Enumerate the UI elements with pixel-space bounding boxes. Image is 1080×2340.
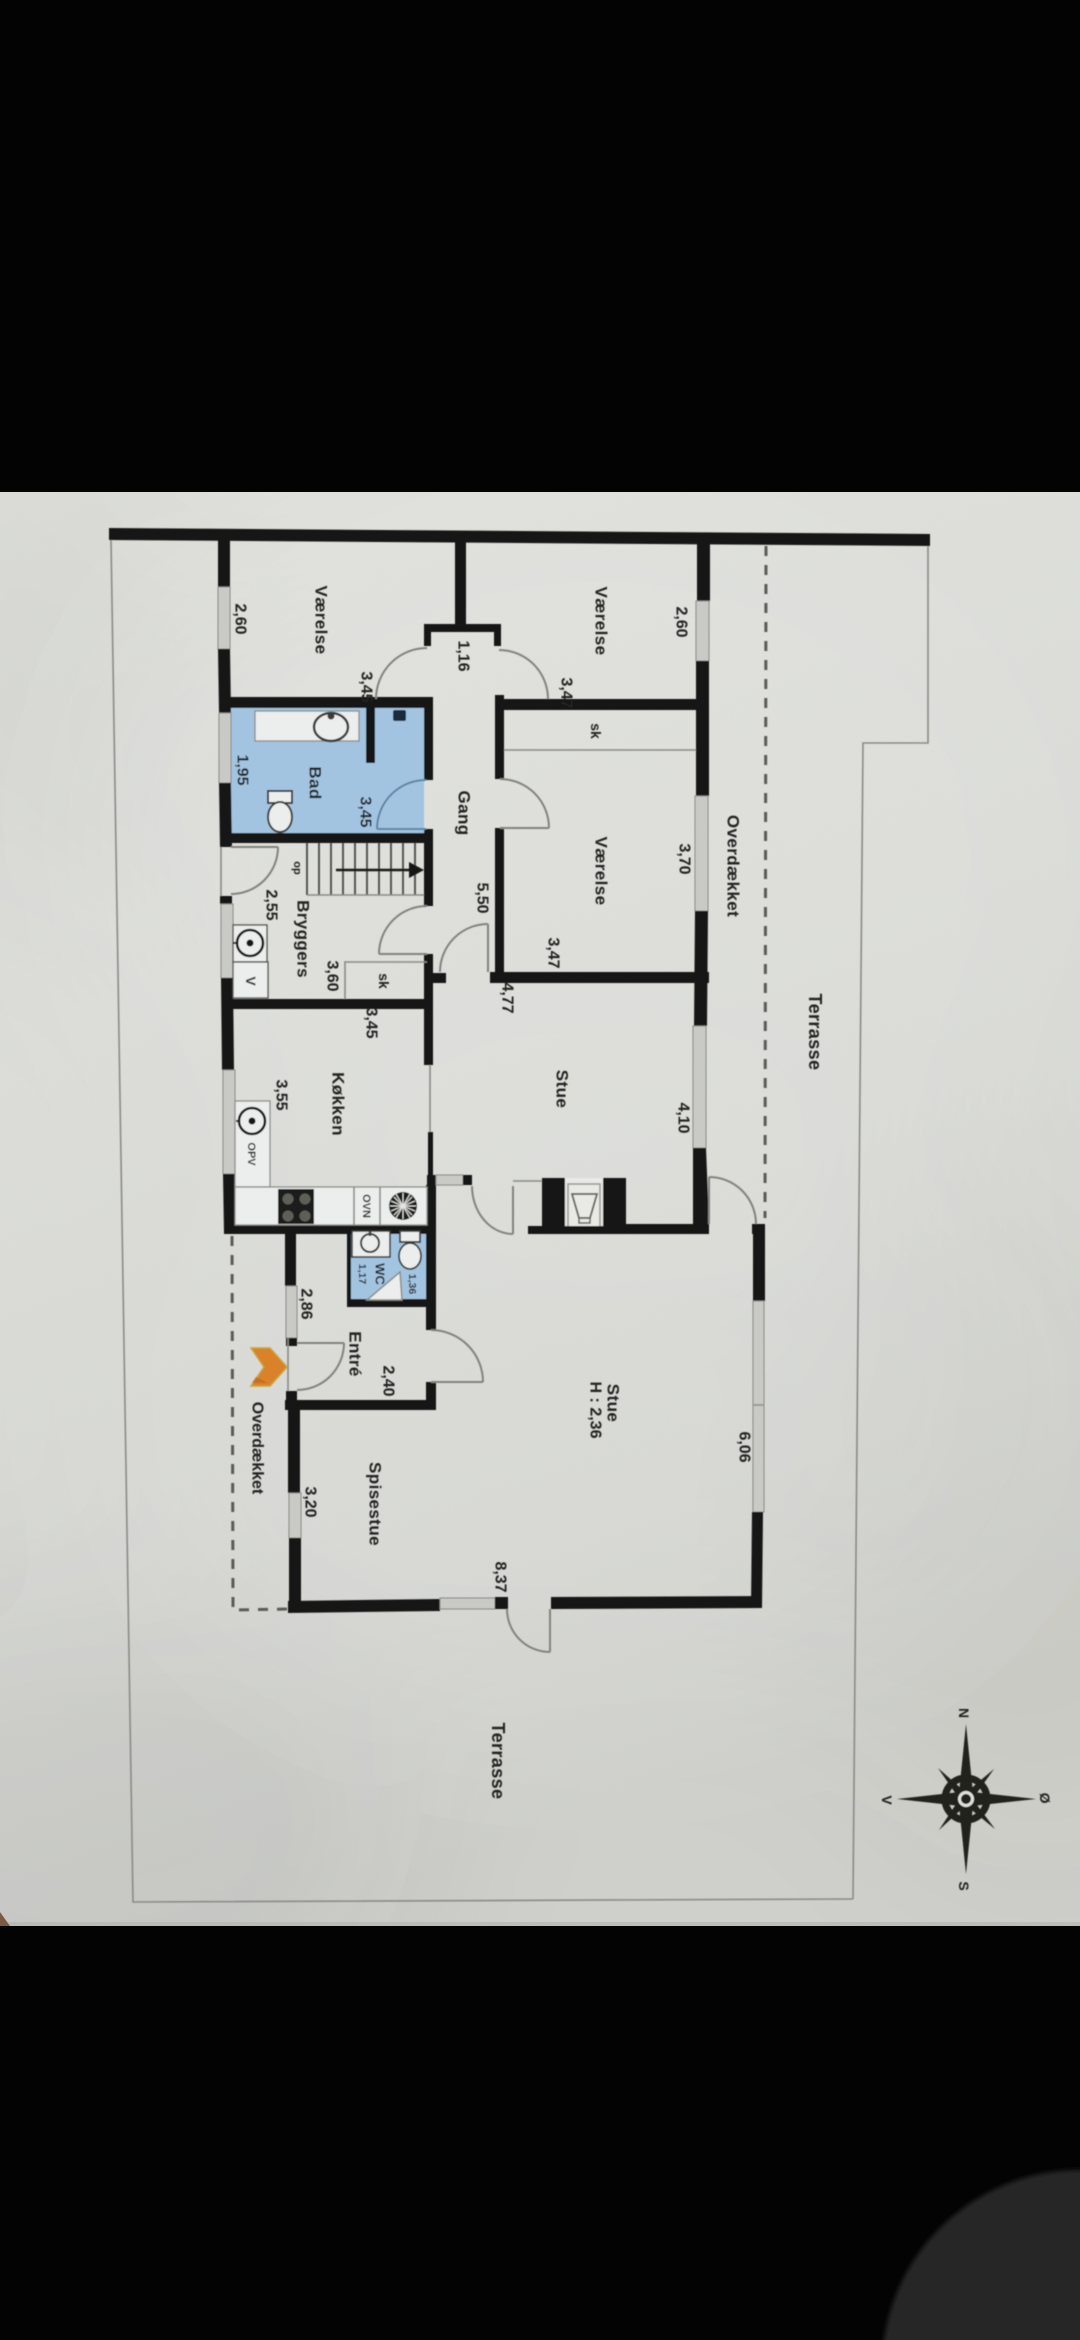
svg-text:3,45: 3,45 xyxy=(357,796,374,827)
svg-text:Køkken: Køkken xyxy=(329,1072,348,1136)
svg-text:1,16: 1,16 xyxy=(455,640,472,671)
svg-text:2,40: 2,40 xyxy=(380,1365,397,1396)
svg-text:3,47: 3,47 xyxy=(558,677,575,708)
svg-text:OVN: OVN xyxy=(360,1194,372,1218)
svg-text:5,50: 5,50 xyxy=(474,882,491,913)
svg-text:3,47: 3,47 xyxy=(545,937,562,968)
svg-text:Ø: Ø xyxy=(1037,1793,1053,1804)
svg-text:Overdækket: Overdækket xyxy=(724,815,743,917)
svg-text:H : 2,36: H : 2,36 xyxy=(587,1382,604,1439)
svg-text:N: N xyxy=(956,1708,972,1718)
svg-text:3,45: 3,45 xyxy=(358,671,375,702)
svg-text:Terrasse: Terrasse xyxy=(488,1723,508,1800)
svg-text:Entré: Entré xyxy=(346,1331,365,1376)
svg-text:Bryggers: Bryggers xyxy=(294,900,313,978)
svg-text:S: S xyxy=(956,1881,972,1890)
svg-text:1,36: 1,36 xyxy=(406,1274,418,1295)
svg-text:3,55: 3,55 xyxy=(273,1079,290,1110)
svg-text:V: V xyxy=(879,1795,895,1805)
svg-text:V: V xyxy=(243,976,259,986)
svg-text:Værelse: Værelse xyxy=(592,837,611,906)
svg-text:op: op xyxy=(291,861,303,875)
svg-text:2,86: 2,86 xyxy=(298,1288,315,1319)
svg-text:6,06: 6,06 xyxy=(736,1431,753,1462)
svg-text:sk: sk xyxy=(376,973,392,989)
svg-text:Overdækket: Overdækket xyxy=(249,1402,266,1495)
svg-text:Værelse: Værelse xyxy=(312,586,331,655)
svg-text:3,60: 3,60 xyxy=(324,960,341,991)
svg-text:4,10: 4,10 xyxy=(675,1102,692,1133)
svg-text:4,77: 4,77 xyxy=(499,982,516,1013)
svg-text:1,95: 1,95 xyxy=(234,754,251,785)
svg-text:2,55: 2,55 xyxy=(263,889,280,920)
svg-text:1,17: 1,17 xyxy=(356,1264,368,1285)
svg-text:3,20: 3,20 xyxy=(302,1486,319,1517)
svg-text:WC: WC xyxy=(373,1263,388,1285)
svg-text:sk: sk xyxy=(588,723,604,739)
svg-text:3,70: 3,70 xyxy=(676,843,693,874)
svg-text:8,37: 8,37 xyxy=(492,1561,509,1592)
svg-text:Værelse: Værelse xyxy=(592,587,611,656)
svg-text:Bad: Bad xyxy=(306,766,325,799)
svg-text:Stue: Stue xyxy=(604,1384,623,1422)
svg-text:Terrasse: Terrasse xyxy=(805,994,825,1071)
svg-text:Gang: Gang xyxy=(455,790,474,835)
svg-text:3,45: 3,45 xyxy=(363,1007,380,1038)
svg-text:Spisestue: Spisestue xyxy=(366,1462,385,1546)
svg-text:2,60: 2,60 xyxy=(232,603,249,634)
svg-text:2,60: 2,60 xyxy=(673,606,690,637)
svg-text:Stue: Stue xyxy=(553,1070,572,1108)
svg-text:OPV: OPV xyxy=(245,1142,257,1166)
